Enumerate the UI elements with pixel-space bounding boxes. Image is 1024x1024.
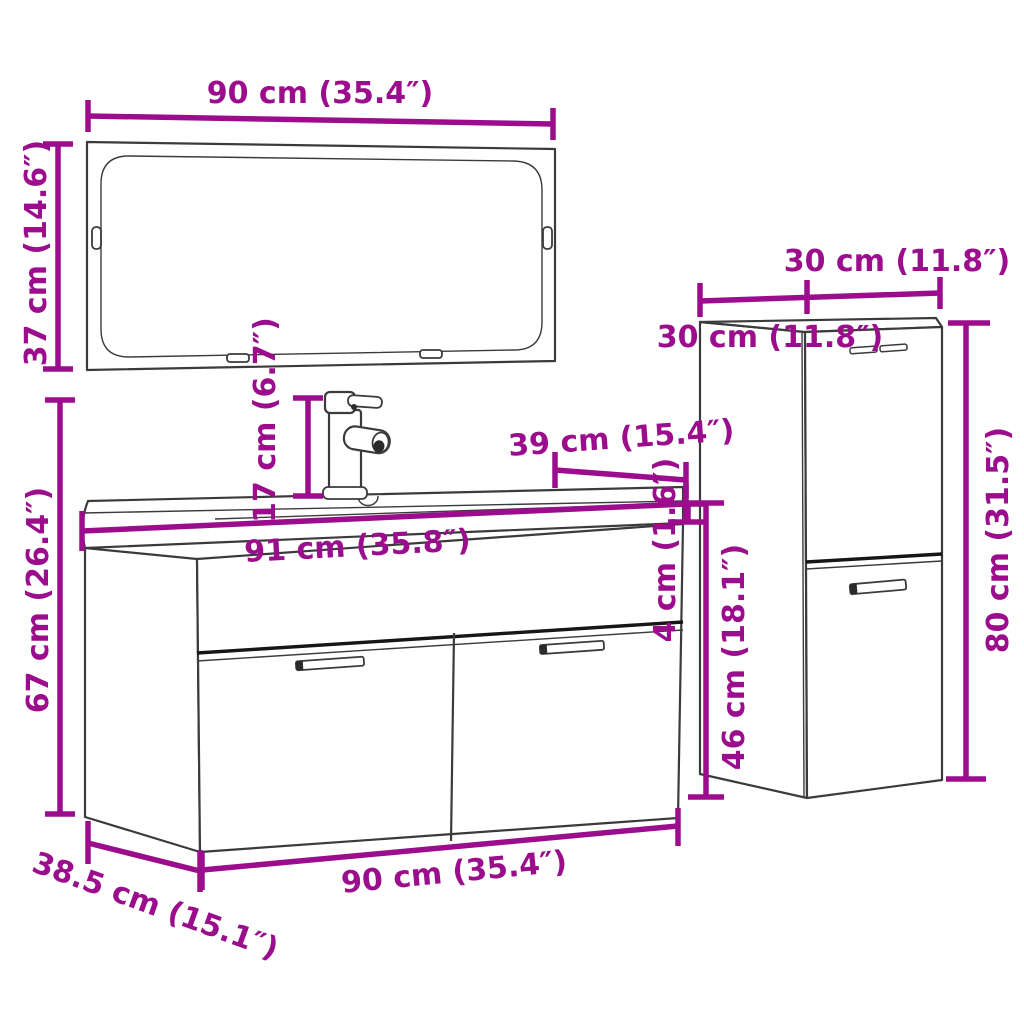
dim-side-cabinet-top: [700, 277, 940, 317]
label-faucet-height: 17 cm (6.7″): [248, 317, 283, 523]
dim-faucet-height: [293, 398, 323, 496]
label-mirror-width: 90 cm (35.4″): [207, 76, 434, 111]
label-mirror-height: 37 cm (14.6″): [19, 140, 54, 367]
sink-cabinet-left-panel: [85, 548, 200, 852]
mirror-outer-frame: [87, 142, 555, 370]
mirror-clip-left: [92, 227, 101, 249]
faucet: [323, 392, 391, 499]
label-cabinet-height: 67 cm (26.4″): [21, 487, 56, 714]
faucet-lever-pin: [351, 404, 357, 410]
label-side-cabinet-lower-height: 46 cm (18.1″): [717, 544, 752, 771]
sink-cabinet-front: [197, 524, 683, 852]
faucet-body: [329, 410, 361, 492]
sink-cabinet: [85, 524, 683, 852]
furniture-dimension-diagram: 90 cm (35.4″) 37 cm (14.6″) 67 cm (26.4″…: [0, 0, 1024, 1024]
label-side-cabinet-depth: 30 cm (11.8″): [657, 320, 884, 355]
wall-mirror: [87, 142, 555, 370]
faucet-base: [323, 487, 367, 499]
label-side-cabinet-height: 80 cm (31.5″): [981, 427, 1016, 654]
label-side-cabinet-width: 30 cm (11.8″): [784, 244, 1011, 279]
mirror-clip-right: [543, 227, 552, 249]
mirror-tab-left: [227, 354, 249, 362]
mirror-tab-right: [420, 350, 442, 358]
label-basin-thickness: 4 cm (1.6″): [648, 458, 683, 643]
